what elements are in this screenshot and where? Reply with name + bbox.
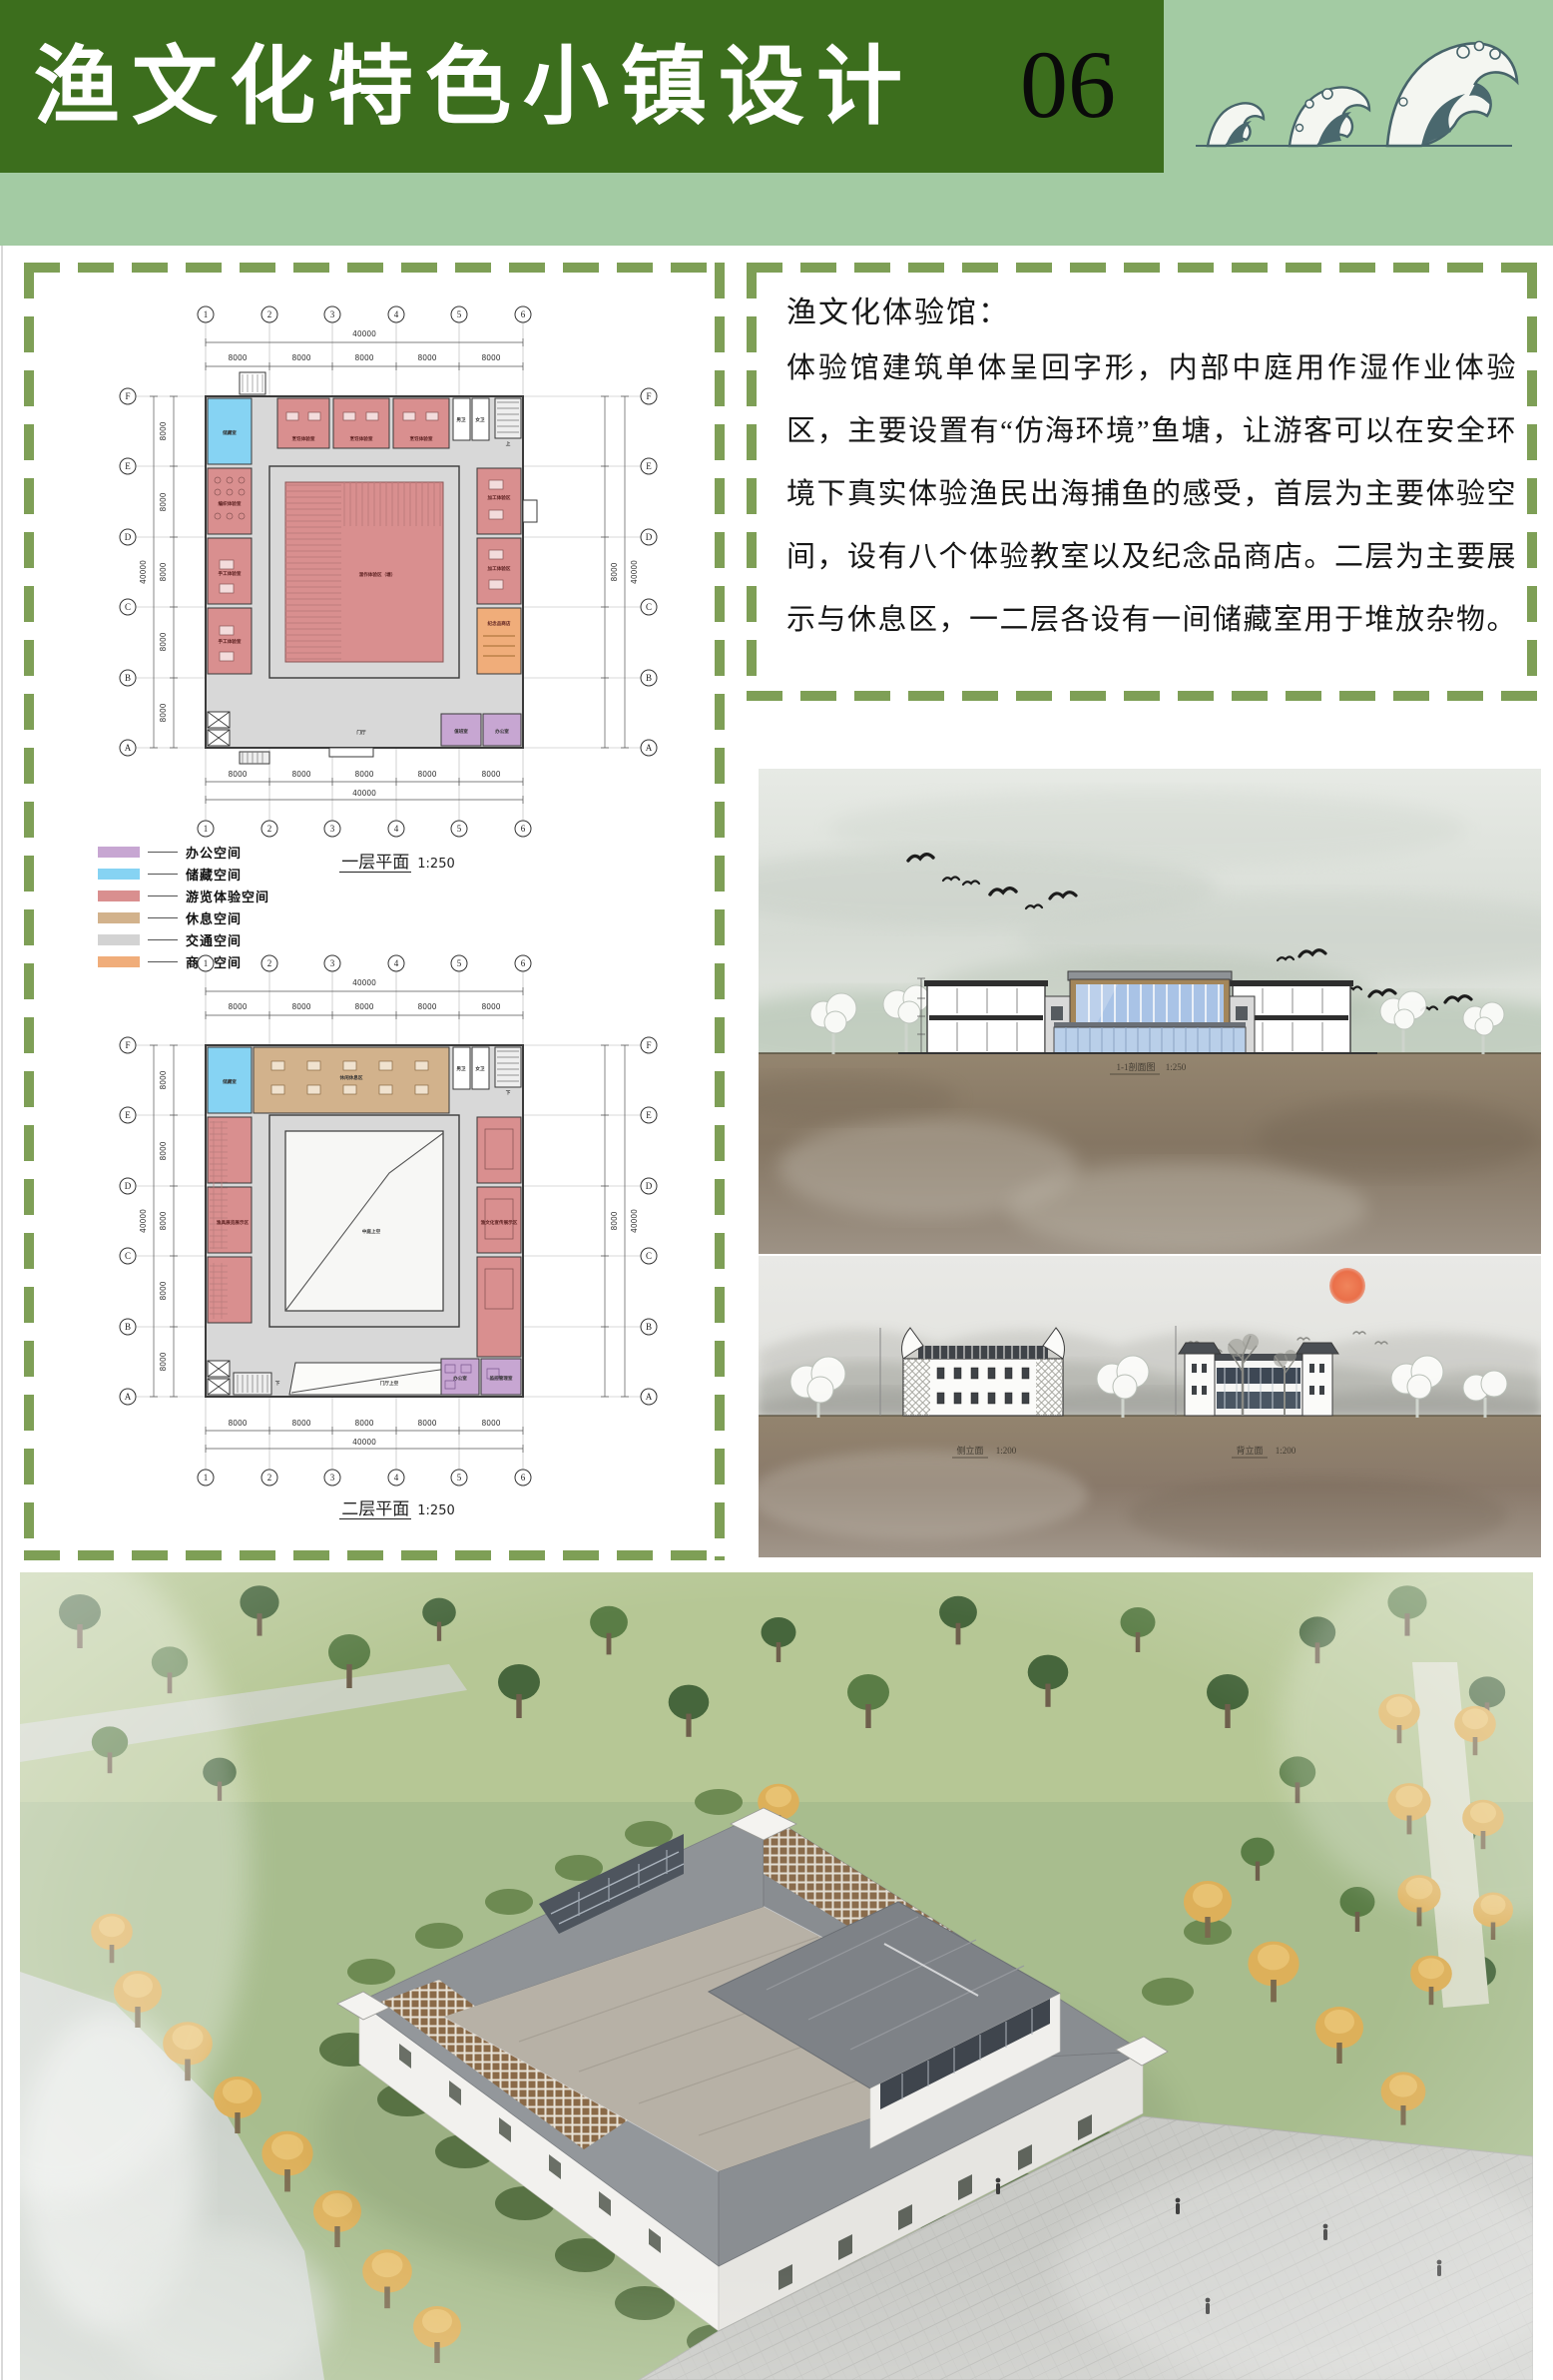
grid-label: A [125,743,132,753]
dim-label: 8000 [417,353,436,362]
grid-label: B [646,1322,652,1332]
plan2-caption-scale: 1:250 [417,1503,454,1518]
room-label: 办公室 [453,1375,467,1382]
dim-label: 8000 [610,1211,619,1230]
grid-label: F [646,1040,651,1050]
dim-label: 8000 [354,770,373,779]
grid-label: F [125,391,130,401]
courtyard-void [285,1131,443,1311]
room-label: 男卫 [456,416,466,423]
room-label: 中庭上空 [362,1228,381,1235]
grid-label: 6 [521,824,526,834]
stair-label: 上 [506,440,511,447]
intro-title: 渔文化体验馆： [786,288,1515,331]
legend-label: 办公空间 [186,843,242,862]
legend-line [148,874,178,875]
grid-label: 3 [330,824,335,834]
building-section [898,971,1377,1053]
dim-label: 8000 [159,632,168,651]
intro-paragraph: 体验馆建筑单体呈回字形，内部中庭用作湿作业体验区，主要设置有“仿海环境”鱼塘，让… [786,337,1517,652]
dim-label: 8000 [354,353,373,362]
legend-row: 休息空间 [98,906,297,928]
grid-label: 5 [457,824,462,834]
plans-panel-border-right [715,263,725,1560]
plan1-caption-name: 一层平面 [339,853,411,873]
grid-label: E [125,1110,131,1120]
room-label: 门厅上空 [380,1380,399,1387]
side-entry-steps [523,500,537,522]
sun [1329,1268,1365,1304]
page-title: 渔文化特色小镇设计 [34,22,932,152]
grid-label: 6 [521,309,526,319]
plans-panel-border-bottom [24,1550,725,1560]
room-label: 储藏室 [223,1078,237,1085]
room-label: 休闲休息区 [339,1074,363,1081]
dim-label: 40000 [352,978,376,987]
grid-label: 5 [457,958,462,968]
svg-text:侧立面: 侧立面 [956,1445,983,1456]
room-label: 值班室 [454,728,468,735]
dim-label: 8000 [159,1070,168,1089]
grid-label: F [646,391,651,401]
aerial-rendering [20,1572,1533,2380]
dim-label: 8000 [481,1419,500,1428]
grid-label: 5 [457,1473,462,1483]
grid-label: A [646,1392,653,1402]
grid-label: 1 [204,958,209,968]
dim-label: 8000 [159,492,168,511]
room-label: 烹饪体验室 [350,435,373,442]
room-label: 监控管理室 [490,1375,513,1382]
dim-label: 8000 [159,1141,168,1160]
gable-tower-left [1179,1343,1221,1416]
stair-bottom [240,752,269,764]
presentation-board: 渔文化特色小镇设计 06 渔文化体验馆 [0,0,1553,2380]
grid-label: 6 [521,1473,526,1483]
legend-row: 办公空间 [98,841,297,863]
grid-label: 6 [521,958,526,968]
legend-swatch-storage [98,869,140,880]
dim-label: 8000 [481,353,500,362]
grid-label: 2 [267,824,272,834]
grid-label: 4 [394,1473,399,1483]
text-panel-border-bottom [747,691,1537,701]
legend-line [148,917,178,918]
dim-label: 8000 [159,1352,168,1371]
svg-text:1:200: 1:200 [996,1446,1017,1456]
grid-label: D [646,1181,653,1191]
display-shelves [210,1121,228,1249]
grid-label: D [125,532,132,542]
room-label: 手工体验室 [219,570,242,577]
svg-text:背立面: 背立面 [1236,1445,1263,1456]
room-label: 门厅 [356,729,366,736]
grid-label: 3 [330,309,335,319]
grid-label: 1 [204,309,209,319]
dim-label: 8000 [228,1419,247,1428]
legend-row: 储藏空间 [98,863,297,885]
dim-label: 8000 [610,562,619,581]
grid-label: 4 [394,309,399,319]
room-label: 渔具展览展示区 [217,1219,250,1226]
wave-illustration-icon [1178,6,1522,166]
text-panel-border-left [747,263,757,701]
room-label: 男卫 [456,1065,466,1072]
stair-label: 下 [506,1089,511,1096]
grid-label: 1 [204,824,209,834]
dim-label: 8000 [228,353,247,362]
room-souvenir-shop [477,608,521,674]
grid-label: D [125,1181,132,1191]
grid-label: D [646,532,653,542]
plans-panel-border-left [24,263,34,1560]
room-label: 渔文化宣传展示区 [481,1219,518,1226]
dim-label: 40000 [630,1209,639,1233]
grid-label: 2 [267,1473,272,1483]
room-label: 手工体验室 [219,638,242,645]
grid-label: 2 [267,309,272,319]
grid-label: 5 [457,309,462,319]
section-rendering: 1-1剖面图 1:250 [759,769,1541,1254]
grid-label: B [646,673,652,683]
room-label: 烹饪体验室 [410,435,433,442]
grid-label: 4 [394,824,399,834]
grid-label: C [646,1251,652,1261]
dim-label: 8000 [159,1281,168,1300]
page-number: 06 [1020,20,1116,150]
grid-label: 2 [267,958,272,968]
room-label: 储藏室 [223,429,237,436]
floor-plan-level2: 40000 8000 8000 8000 8000 8000 8000 8000… [90,933,689,1507]
dim-label: 8000 [159,1211,168,1230]
room-label: 办公室 [495,728,509,735]
grid-label: 3 [330,1473,335,1483]
gable-tower-right [1296,1343,1338,1416]
dim-label: 8000 [159,703,168,722]
dim-label: 8000 [291,353,310,362]
plans-panel-border-top [24,263,725,273]
grid-label: B [125,673,131,683]
dim-label: 8000 [481,770,500,779]
legend-swatch-rest [98,912,140,923]
header-band: 渔文化特色小镇设计 06 [0,0,1553,246]
dim-label: 8000 [354,1419,373,1428]
legend-line [148,852,178,853]
page-edge-line [1,246,3,2380]
plan2-caption-name: 二层平面 [339,1499,411,1519]
svg-text:1:200: 1:200 [1276,1446,1296,1456]
plan2-caption: 二层平面1:250 [248,1494,547,1519]
dim-label: 8000 [354,1002,373,1011]
grid-label: F [125,1040,130,1050]
legend-swatch-experience [98,891,140,901]
legend-line [148,895,178,896]
dim-label: 40000 [352,789,376,798]
dim-label: 8000 [159,421,168,440]
grid-label: C [646,602,652,612]
room-label: 烹饪体验室 [292,435,315,442]
stair-label: 下 [275,1380,280,1387]
rooms-right-exhibit [477,1117,521,1357]
dim-label: 8000 [417,1002,436,1011]
grid-label: 4 [394,958,399,968]
grid-label: E [646,461,652,471]
legend-label: 游览体验空间 [186,887,269,905]
dim-label: 8000 [159,562,168,581]
grid-label: A [125,1392,132,1402]
dim-label: 8000 [228,1002,247,1011]
building-floor2: 储藏室 休闲休息区 男卫 女卫 下 中庭上空 [206,1045,523,1397]
dim-label: 40000 [352,329,376,338]
dim-label: 40000 [352,1438,376,1447]
room-label: 女卫 [475,416,485,423]
grid-label: E [646,1110,652,1120]
room-rest-area [254,1047,449,1113]
svg-text:1:250: 1:250 [1166,1062,1187,1072]
legend-row: 游览体验空间 [98,885,297,906]
grid-label: B [125,1322,131,1332]
grid-label: C [125,602,131,612]
dim-label: 40000 [630,560,639,584]
room-label: 湿作体验区（塘） [359,571,396,578]
dim-label: 8000 [228,770,247,779]
dim-label: 8000 [481,1002,500,1011]
dim-label: 40000 [139,1209,148,1233]
grid-label: C [125,1251,131,1261]
floor-plan-level1: 40000 8000 8000 8000 8000 8000 8000 8000… [90,285,689,859]
grid-label: 3 [330,958,335,968]
text-panel-border-top [747,263,1537,273]
dim-label: 8000 [291,770,310,779]
room-label: 加工体验区 [487,494,511,501]
grid-label: E [125,461,131,471]
legend-label: 休息空间 [186,908,242,927]
grid-label: A [646,743,653,753]
elevation-rendering: 侧立面 1:200 背立面 1:200 [759,1256,1541,1557]
building-floor1: 湿作体验区（塘） 储藏室 烹饪体验室 烹饪体验室 烹饪体验室 男卫 女卫 上 [206,372,537,764]
plan1-caption-scale: 1:250 [417,857,454,872]
legend-label: 储藏空间 [186,865,242,884]
room-label: 加工体验区 [487,565,511,572]
legend-swatch-office [98,847,140,858]
text-panel-border-right [1527,263,1537,701]
dim-label: 8000 [291,1419,310,1428]
room-label: 女卫 [475,1065,485,1072]
room-label: 编织体验室 [219,500,242,507]
dim-label: 8000 [291,1002,310,1011]
room-label: 纪念品商店 [488,620,511,627]
dim-label: 40000 [139,560,148,584]
entrance-canopy [329,748,373,757]
dim-label: 8000 [417,1419,436,1428]
dim-label: 8000 [417,770,436,779]
svg-text:1-1剖面图: 1-1剖面图 [1117,1061,1156,1072]
grid-label: 1 [204,1473,209,1483]
